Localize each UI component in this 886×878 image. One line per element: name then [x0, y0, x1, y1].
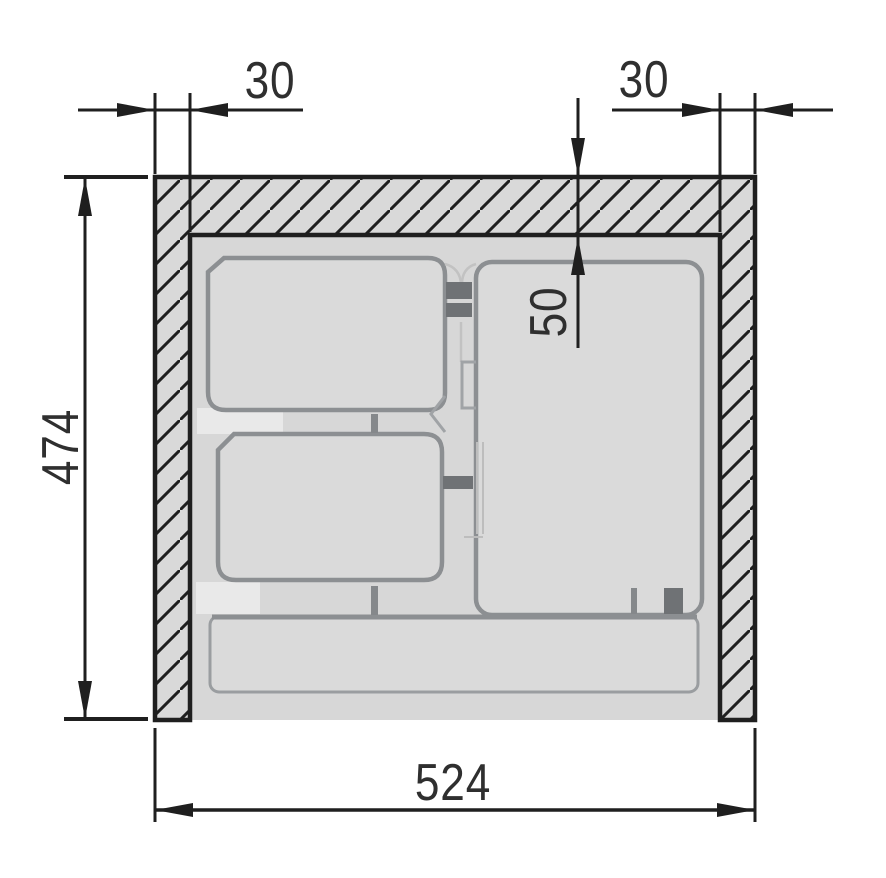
divider-tick	[631, 588, 637, 614]
technical-drawing-canvas: 30 30 50 474 524	[0, 0, 886, 878]
arrowhead-left-icon	[755, 103, 793, 117]
clip-middle	[443, 476, 473, 489]
arrowhead-left-icon	[190, 103, 228, 117]
compartment-bottom-left	[218, 434, 442, 580]
arrowhead-right-icon	[717, 803, 755, 817]
dim-label-top-panel: 50	[520, 287, 578, 338]
arrowhead-right-icon	[117, 103, 155, 117]
dimension-outer-width-524: 524	[155, 728, 755, 822]
arrowhead-down-icon	[78, 681, 92, 719]
divider-tick	[371, 414, 378, 433]
compartment-bottom-strip	[210, 616, 698, 692]
clip-top-b	[446, 303, 472, 317]
arrowhead-up-icon	[78, 178, 92, 216]
cabinet-cross-section-svg: 30 30 50 474 524	[0, 0, 886, 878]
clip-bottom-right	[664, 588, 683, 614]
compartment-top-left	[208, 258, 445, 410]
arrowhead-left-icon	[155, 803, 193, 817]
compartment-right	[476, 262, 702, 615]
dim-label-outer-width: 524	[415, 754, 491, 812]
clip-top-a	[446, 282, 472, 299]
tray-highlight	[196, 582, 260, 614]
dimension-outer-height-474: 474	[32, 177, 148, 719]
dim-label-left-wall: 30	[245, 52, 296, 110]
divider-tick	[371, 586, 378, 615]
arrowhead-right-icon	[682, 103, 720, 117]
dim-label-outer-height: 474	[32, 409, 90, 485]
arrowhead-down-icon	[571, 138, 585, 176]
dim-label-right-wall: 30	[619, 51, 670, 109]
